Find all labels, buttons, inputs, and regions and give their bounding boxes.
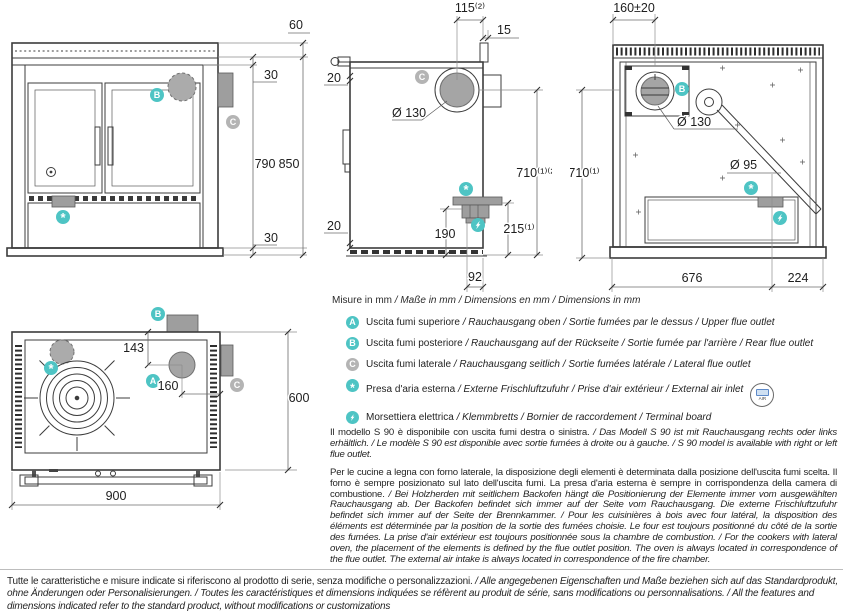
description-text: Il modello S 90 è disponibile con uscita… — [330, 428, 837, 573]
rear-flue-circle — [168, 73, 196, 101]
clean-air-badge: AIR — [750, 383, 774, 407]
front-view-drawing: B C * 60 30 790 850 30 — [5, 15, 310, 280]
rear-flue-stub — [167, 315, 198, 332]
asterisk-icon: * — [346, 379, 359, 392]
rear-flue-circle — [641, 77, 669, 105]
back-view-body — [610, 45, 826, 258]
air-inlet-asterisk-badge: * — [56, 210, 70, 225]
lateral-flue-c-badge: C — [415, 70, 429, 84]
lateral-flue-stub — [221, 345, 233, 376]
svg-text:C: C — [234, 380, 241, 390]
dim-width: 900 — [106, 489, 127, 503]
air-inlet-asterisk-badge: * — [744, 181, 758, 196]
dim-rail-height: 60 — [289, 18, 303, 32]
cooking-rings — [24, 361, 130, 452]
lightning-icon — [346, 411, 359, 424]
dim-width-left: 676 — [682, 271, 703, 285]
c-badge: C — [346, 358, 359, 371]
legend-list: A Uscita fumi superiore / Rauchausgang o… — [332, 316, 838, 424]
a-badge: A — [346, 316, 359, 329]
svg-text:B: B — [155, 309, 162, 319]
air-inlet-asterisk-badge: * — [459, 182, 473, 197]
legend-item-upper-flue: A Uscita fumi superiore / Rauchausgang o… — [332, 316, 838, 329]
stove-pictogram — [756, 389, 769, 396]
dim-total-height: 850 — [279, 157, 300, 171]
legend-item-air-inlet: * Presa d'aria esterna / Externe Frischl… — [332, 379, 838, 403]
terminal-board-lightning-badge — [773, 211, 787, 225]
lateral-oven-paragraph: Per le cucine a legna con forno laterale… — [330, 468, 837, 566]
air-inlet-asterisk-badge: * — [44, 361, 58, 376]
dim-air-offset: 92 — [468, 270, 482, 284]
lateral-flue-stub — [218, 73, 233, 107]
air-inlet-flange — [453, 197, 502, 205]
svg-text:B: B — [679, 84, 686, 94]
b-badge: B — [346, 337, 359, 350]
svg-text:A: A — [150, 376, 157, 386]
dim-flue-side-offset: 160 — [158, 379, 179, 393]
dim-depth: 600 — [289, 391, 310, 405]
dim-splash-depth: 15 — [497, 23, 511, 37]
front-view-dimensions: 60 30 790 850 30 — [203, 18, 310, 258]
terminal-board-lightning-badge — [471, 218, 485, 232]
legend-item-rear-flue: B Uscita fumi posteriore / Rauchausgang … — [332, 337, 838, 350]
dim-flue-diameter: Ø 130 — [677, 115, 711, 129]
footer-disclaimer: Tutte le caratteristiche e misure indica… — [7, 576, 839, 613]
dim-air-flange-height: 190 — [435, 227, 456, 241]
dim-width-right: 224 — [788, 271, 809, 285]
back-view-drawing: B * 160±20 Ø 130 Ø 95 710⁽¹⁾ 676 224 — [570, 0, 843, 300]
footer-divider — [0, 569, 843, 570]
rear-flue-b-badge: B — [151, 307, 165, 321]
dim-top-inset: 20 — [327, 71, 341, 85]
model-availability-paragraph: Il modello S 90 è disponibile con uscita… — [330, 428, 837, 461]
legend-item-lateral-flue: C Uscita fumi laterale / Rauchausgang se… — [332, 358, 838, 371]
svg-text:C: C — [419, 72, 426, 82]
dim-top-gap: 30 — [264, 68, 278, 82]
page: { "colors": {"teal":"#4ec4c4","badge_gra… — [0, 0, 843, 616]
rear-flue-b-badge: B — [675, 82, 689, 96]
legend: Misure in mm / Maße in mm / Dimensions e… — [332, 294, 838, 432]
dim-body-height: 790 — [255, 157, 276, 171]
lateral-flue-c-badge: C — [226, 115, 240, 129]
dim-flue-offset: 160±20 — [613, 1, 655, 15]
dim-flue-height: 710⁽¹⁾⁽²⁾ — [516, 166, 552, 180]
dim-flue-diameter: Ø 130 — [392, 106, 426, 120]
air-inlet-connector — [758, 197, 783, 207]
dim-flue-depth: 143 — [123, 341, 144, 355]
dim-plinth-height: 30 — [264, 231, 278, 245]
rear-flue-b-badge: B — [150, 88, 164, 102]
front-view-body — [7, 43, 233, 256]
air-inlet-circle — [50, 340, 74, 364]
side-view-drawing: C * 115⁽²⁾ 15 20 20 Ø 130 710 — [312, 0, 552, 300]
top-view-drawing: B A C * 143 160 600 900 — [5, 300, 315, 515]
dim-air-pipe-diameter: Ø 95 — [730, 158, 757, 172]
dim-air-inlet-height: 215⁽¹⁾ — [503, 222, 534, 236]
dim-bottom-inset: 20 — [327, 219, 341, 233]
svg-text:B: B — [154, 90, 161, 100]
units-note: Misure in mm / Maße in mm / Dimensions e… — [332, 294, 838, 307]
legend-item-terminal-board: Morsettiera elettrica / Klemmbretts / Bo… — [332, 411, 838, 424]
lateral-flue-c-badge: C — [230, 378, 244, 392]
dim-flue-height: 710⁽¹⁾ — [570, 166, 600, 180]
svg-text:C: C — [230, 117, 237, 127]
dim-flue-offset: 115⁽²⁾ — [455, 1, 485, 15]
